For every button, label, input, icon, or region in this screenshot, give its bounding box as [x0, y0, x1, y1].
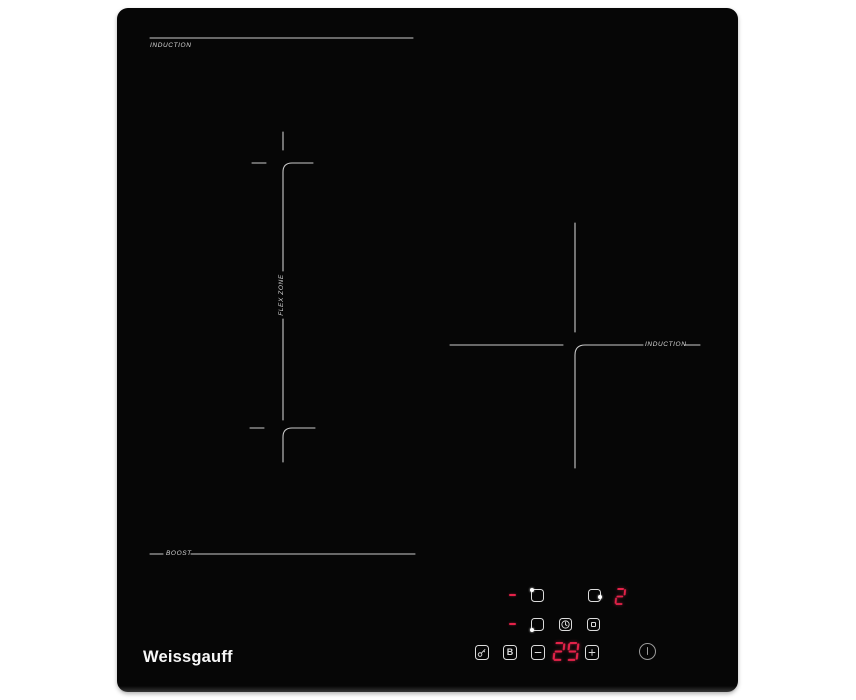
cooktop-panel: INDUCTION FLEX ZONE INDUCTION BOOST Weis…	[117, 8, 738, 692]
plus-icon	[586, 646, 598, 659]
key-lock-icon	[476, 646, 488, 659]
zone-markings	[117, 8, 738, 692]
product-photo: INDUCTION FLEX ZONE INDUCTION BOOST Weis…	[0, 0, 856, 700]
zone-rear-left-button[interactable]	[531, 589, 544, 602]
label-induction-right: INDUCTION	[645, 341, 687, 349]
boost-button[interactable]: B	[503, 645, 517, 660]
zone-front-left-button[interactable]	[531, 618, 544, 631]
plus-button[interactable]	[585, 645, 599, 660]
label-flex-zone: FLEX ZONE	[278, 255, 288, 335]
timer-clock-icon	[560, 619, 571, 630]
minus-button[interactable]	[531, 645, 545, 660]
zone-right-dot-icon	[598, 595, 602, 599]
zone-rear-left-dot-icon	[530, 588, 534, 592]
label-induction-top-left: INDUCTION	[150, 42, 192, 50]
zone-front-left-dot-icon	[530, 628, 534, 632]
flex-zone-top-marker	[252, 132, 313, 271]
label-boost: BOOST	[166, 550, 192, 558]
pause-icon	[591, 622, 596, 627]
power-icon	[647, 647, 649, 655]
pause-button[interactable]	[587, 618, 600, 631]
zone-right-button[interactable]	[588, 589, 601, 602]
brand-logo: Weissgauff	[143, 648, 233, 667]
minus-icon	[532, 646, 544, 659]
timer-button[interactable]	[559, 618, 572, 631]
lock-button[interactable]	[475, 645, 489, 660]
power-button[interactable]	[639, 643, 656, 660]
boost-button-label: B	[504, 646, 516, 659]
flex-zone-bottom-marker	[250, 319, 315, 462]
timer-display	[552, 642, 580, 661]
right-zone-level-display	[614, 588, 626, 605]
